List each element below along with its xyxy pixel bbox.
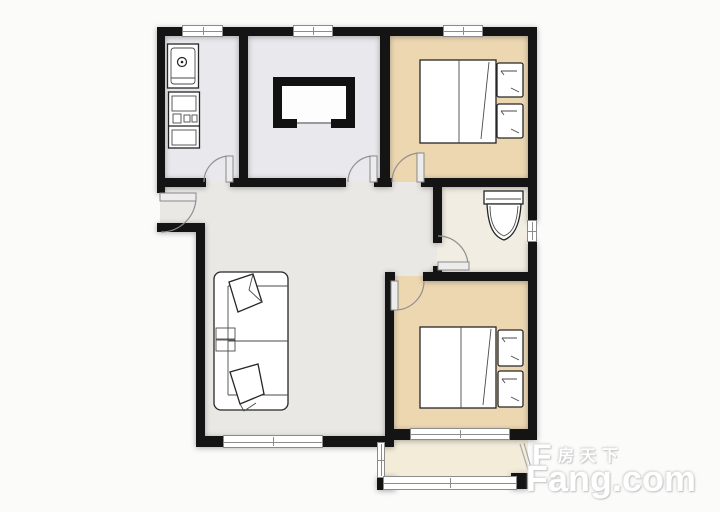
sofa [214,272,288,411]
dining-door [348,156,377,182]
watermark: F 房天下 Fang.com [524,436,720,506]
toilet [484,191,523,240]
tv-cabinet [273,77,355,128]
bed-bedroom1 [420,60,523,143]
watermark-brand-en: Fang.com [526,458,696,500]
bathroom-door [438,236,469,270]
kitchen-door [204,156,233,182]
floor-plan-image: F 房天下 Fang.com [0,0,720,512]
bed-bedroom2 [420,327,523,408]
bedroom1-door [392,153,424,182]
kitchen-stove [169,92,200,148]
entry-door [160,193,196,232]
kitchen-sink [168,44,199,88]
bedroom2-door [391,281,424,310]
